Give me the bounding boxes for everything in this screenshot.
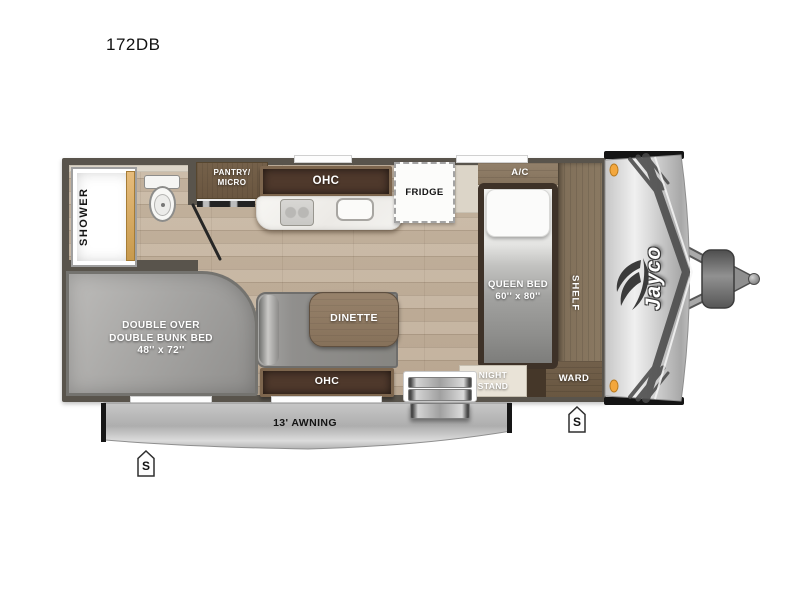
bedroom-wall-trim [455,165,480,213]
entry-step-3 [410,403,470,419]
fridge-area [394,162,455,223]
propane-cover [702,250,734,308]
entry-step-1 [408,377,472,388]
pantry-ledge [197,199,255,207]
window-bottom-bunk [130,396,212,404]
bunk-bed [66,271,258,396]
awning-end-left [101,403,106,442]
dinette-armrest [259,295,279,365]
sink-icon [336,198,374,221]
window-top-bedroom [456,155,528,163]
floorplan-canvas: S S 172DB SHOWER PANTRY/ MICRO OHC FRIDG… [0,0,800,600]
window-top-kitchen [294,155,352,163]
kitchen-overhead-cabinet [260,166,392,197]
marker-light-bottom-icon [610,380,618,392]
front-cap [604,151,692,405]
jayco-bird-icon [617,258,649,310]
speaker-marker-left: S [137,450,155,477]
jayco-brand-logo: Jayco [642,236,666,320]
entry-step-2 [408,389,472,401]
awning-label: 13' AWNING [235,416,375,431]
dinette-overhead-cabinet [260,368,394,397]
speaker-letter: S [142,459,150,473]
kitchen-counter [256,196,402,230]
cap-graphics [630,157,686,399]
hitch-ball [749,274,760,285]
cap-roof-edge-top [604,151,684,159]
cooktop-icon [280,199,314,226]
speaker-marker-right: S [568,406,586,433]
shower-door-trim [126,171,135,261]
bed-pillow [486,189,550,237]
hitch-coupler [733,266,750,292]
speaker-letter: S [573,415,581,429]
awning-end-right [507,403,512,433]
cap-chevron-highlight [655,157,692,399]
window-bottom-dinette [271,396,382,404]
pantry-micro-cabinet [196,162,268,199]
toilet-flush-dot [161,203,165,207]
marker-light-top-icon [610,164,618,176]
dinette-table [309,292,399,347]
hitch-assembly [684,249,760,308]
floorplan-title: 172DB [106,34,216,56]
cap-roof-edge-bottom [604,397,684,405]
